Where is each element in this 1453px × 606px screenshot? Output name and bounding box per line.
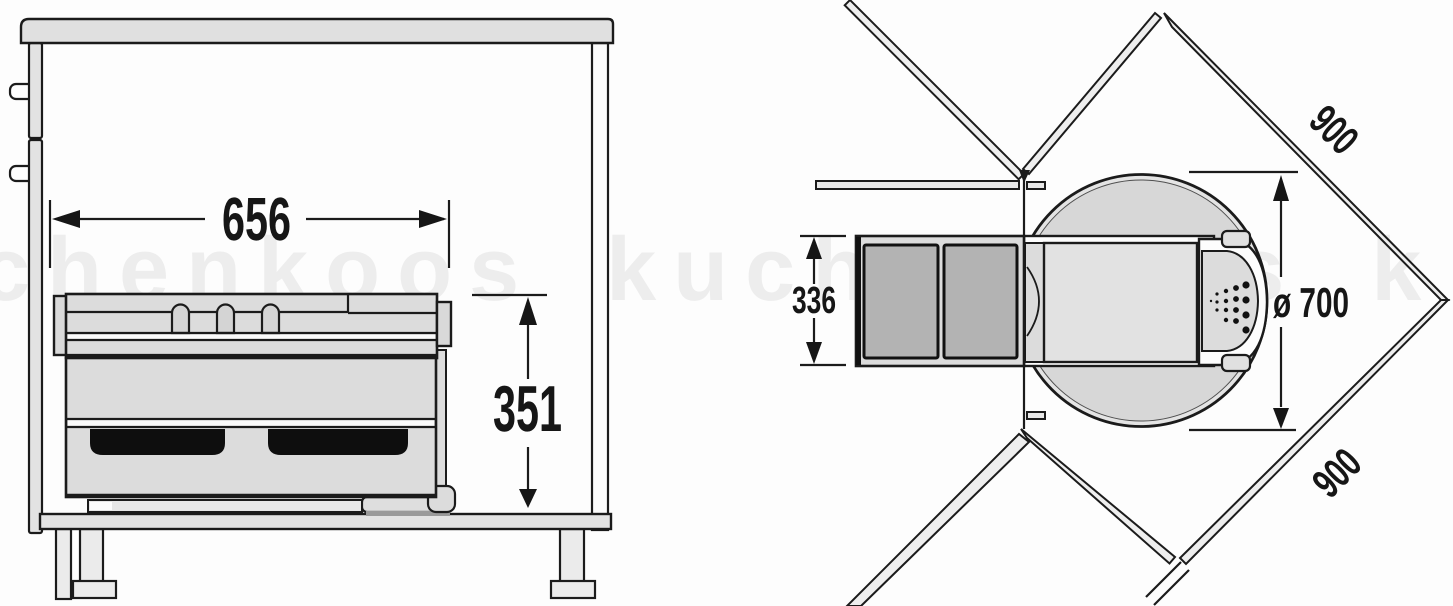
svg-text:351: 351 [493,372,562,445]
svg-text:900: 900 [1303,439,1370,506]
svg-text:336: 336 [792,280,836,322]
svg-text:ø 700: ø 700 [1273,279,1349,326]
svg-text:900: 900 [1301,96,1368,163]
svg-text:656: 656 [222,185,291,253]
